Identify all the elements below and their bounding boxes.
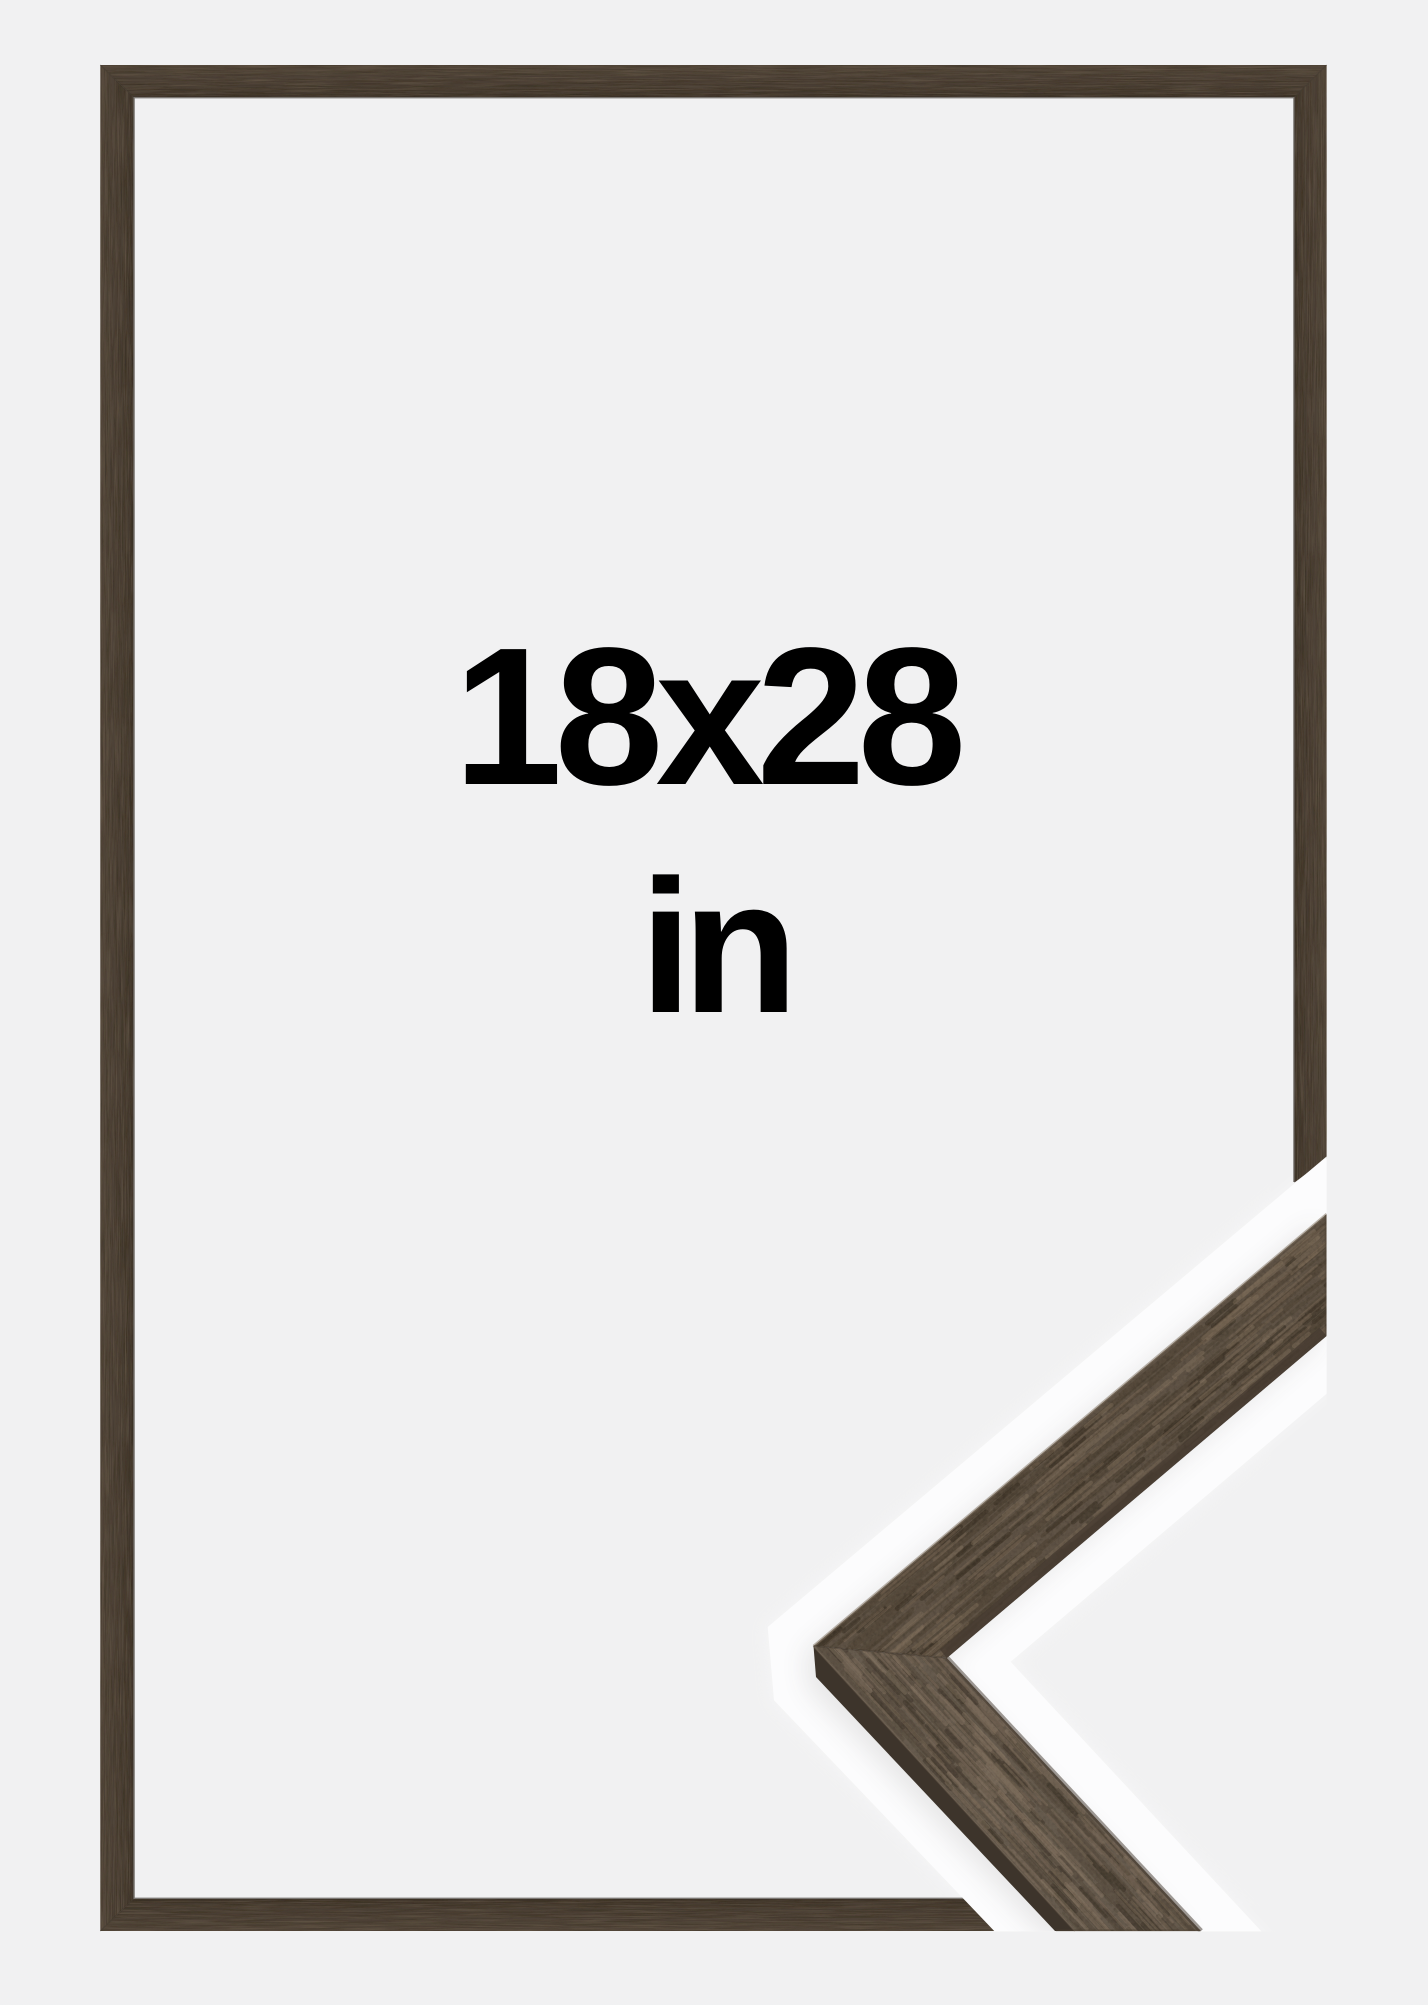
svg-text:in: in — [640, 841, 789, 1053]
svg-text:18x28: 18x28 — [453, 607, 960, 826]
